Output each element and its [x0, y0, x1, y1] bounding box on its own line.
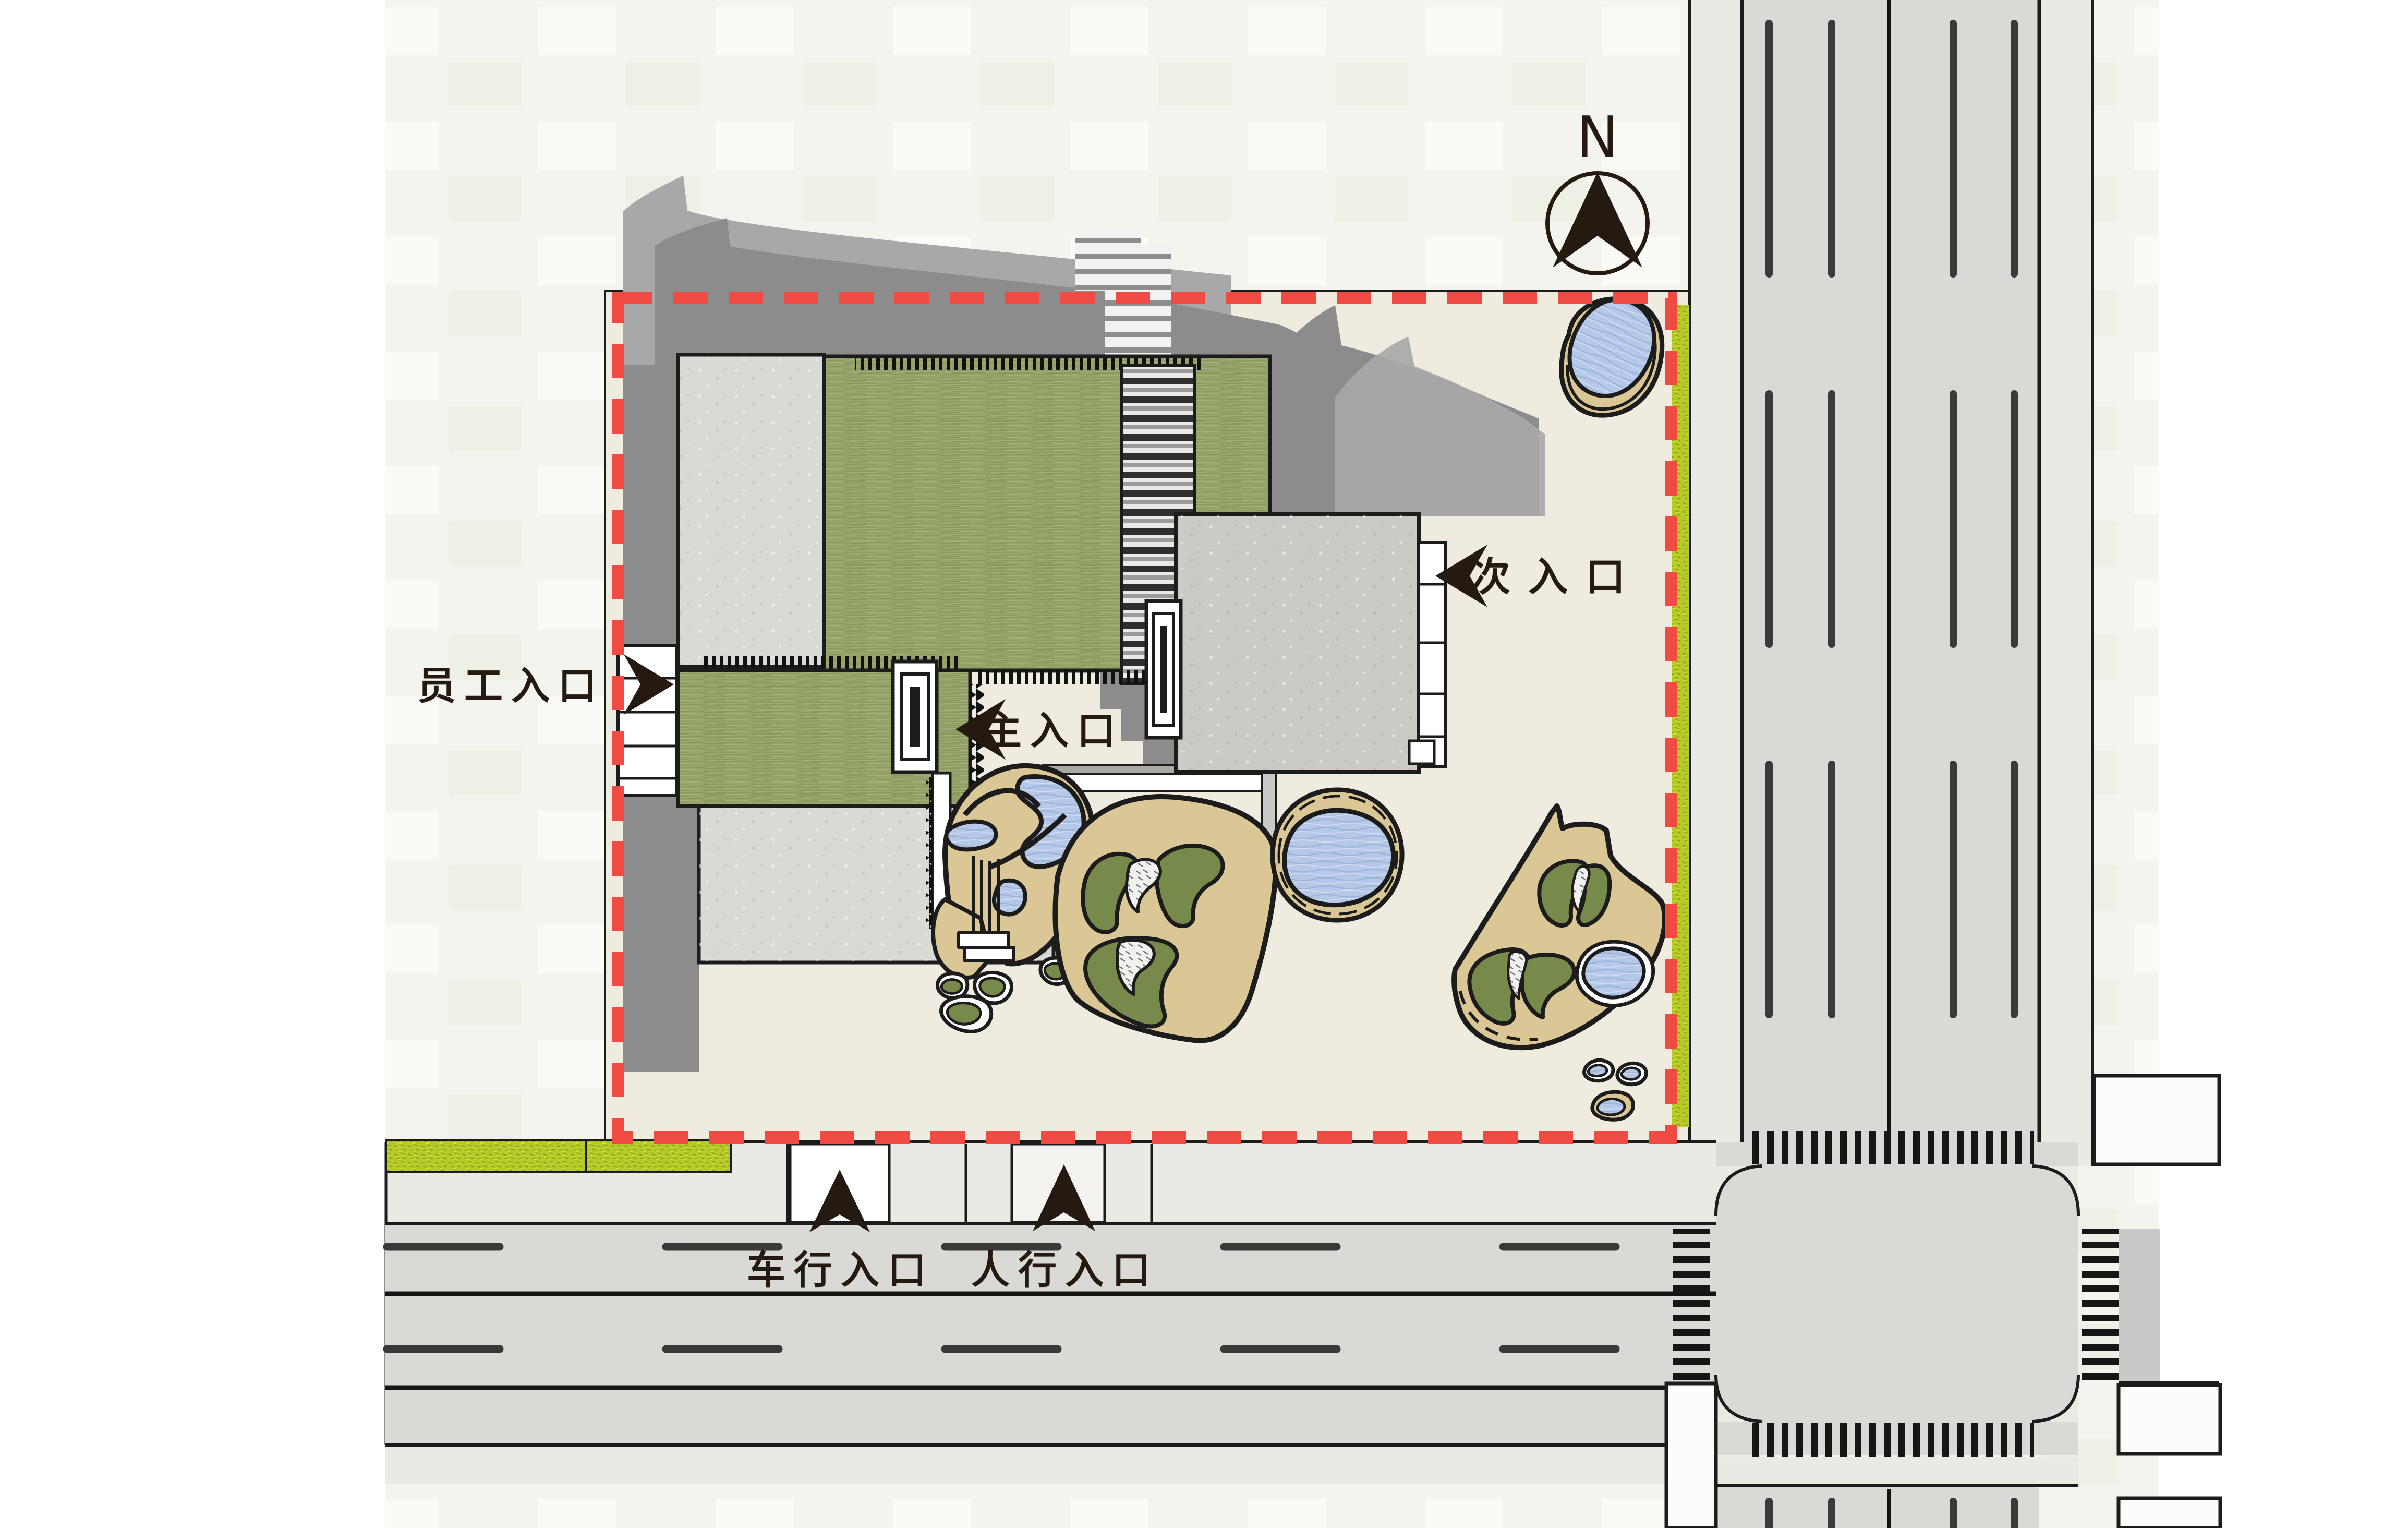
hedge-bottom-west: [386, 1140, 586, 1172]
east-sidewalk: [2039, 0, 2092, 1166]
mound-green-terraces: [1055, 797, 1275, 1041]
crosswalk-south: [1750, 1423, 2034, 1457]
crosswalk-north: [1750, 1131, 2034, 1164]
hedge-bottom-east: [586, 1140, 731, 1172]
right-margin: [2159, 0, 2408, 1528]
site-plan-canvas: 员工入口 主入口 次入口 车行入口 人行入口 N: [0, 0, 2408, 1528]
crosswalk-west: [1673, 1229, 1710, 1382]
shadow-south-fringe: [623, 965, 699, 1072]
round-pond: [1273, 790, 1402, 920]
east-median-strip: [2119, 1229, 2160, 1382]
west-sidewalk: [1690, 0, 1742, 1166]
secondary-entrance-label: 次入口: [1471, 556, 1643, 599]
vehicle-entrance-label: 车行入口: [747, 1249, 935, 1292]
staff-entrance-label: 员工入口: [417, 665, 605, 708]
east-west-road: [385, 1141, 1716, 1484]
garden-pond-east: [1577, 942, 1653, 1005]
pedestrian-entrance-label: 人行入口: [971, 1249, 1159, 1292]
secondary-entrance-mat: [1146, 601, 1181, 738]
main-entrance-label: 主入口: [983, 710, 1124, 753]
site-plan-drawing: 员工入口 主入口 次入口 车行入口 人行入口 N: [0, 0, 2408, 1528]
crosswalk-east: [2082, 1229, 2119, 1382]
north-south-road: [1690, 0, 2092, 1166]
building-f: [1146, 514, 1446, 772]
compass-north-letter: N: [1577, 105, 1619, 170]
staff-entrance-steps: [618, 646, 677, 796]
main-entrance-mat: [893, 661, 937, 772]
south-sidewalk: [385, 1447, 1716, 1484]
